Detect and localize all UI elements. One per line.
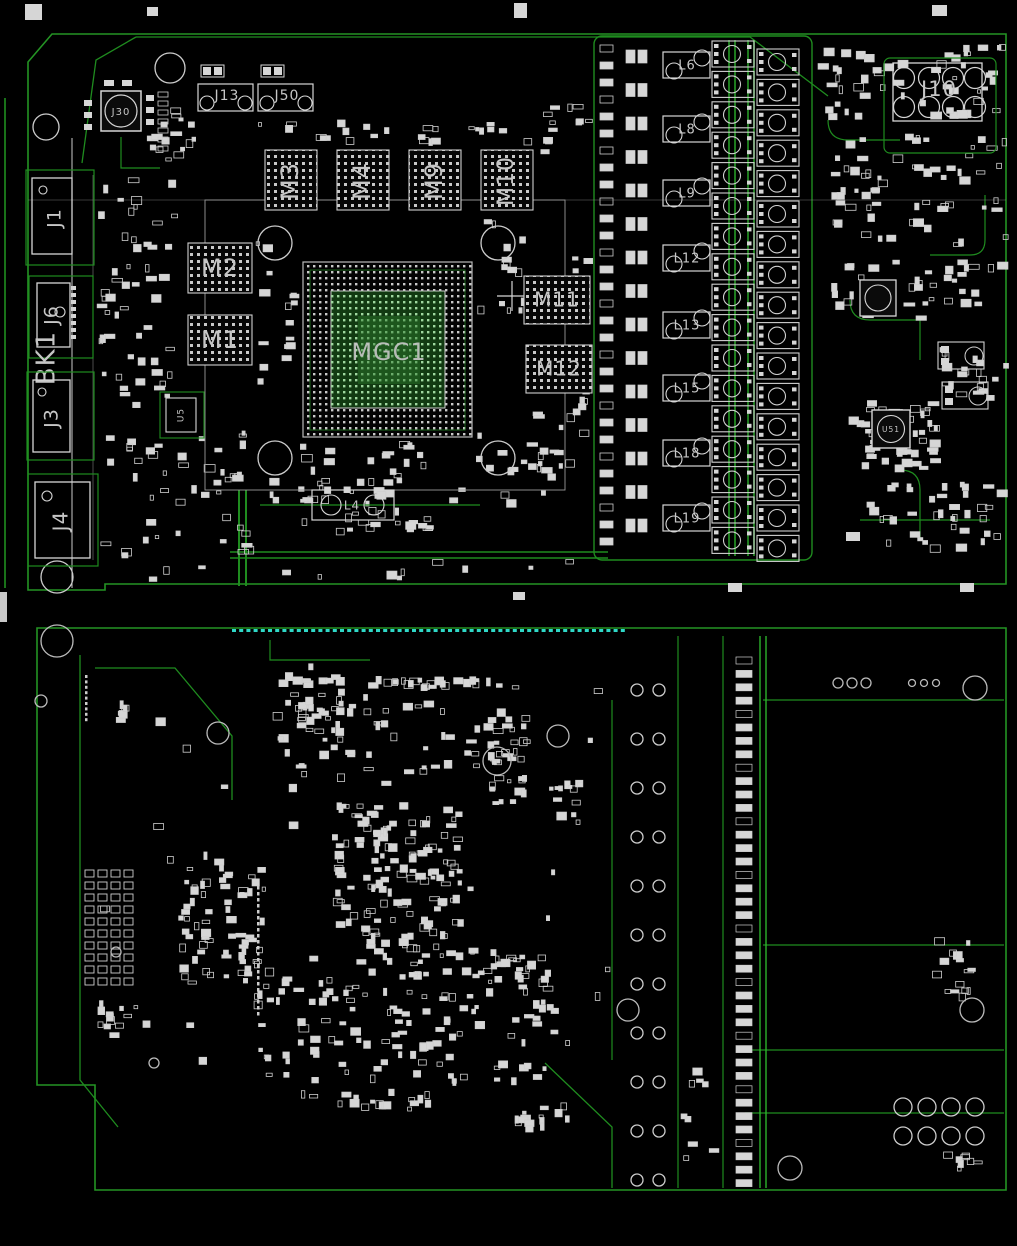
smd-pad <box>522 1040 525 1047</box>
smd-pad <box>502 724 512 728</box>
smd-pad <box>128 355 134 359</box>
smd-pad <box>285 750 289 757</box>
smd-pad <box>902 459 912 467</box>
smd-pad <box>997 490 1007 497</box>
smd-pad <box>860 93 870 99</box>
smd-pad <box>219 878 225 883</box>
smd-pad <box>565 1116 569 1122</box>
memory-m10: M10 <box>481 150 533 210</box>
smd-pad <box>961 299 971 307</box>
smd-pad <box>339 807 343 812</box>
diode-pin <box>945 398 953 405</box>
connector-pad <box>736 831 752 838</box>
smd-pad <box>931 112 942 119</box>
smd-pad <box>541 150 549 154</box>
smd-pad <box>447 951 456 956</box>
silk-dash <box>232 629 236 632</box>
mosfet-pin <box>714 113 719 117</box>
smd-pad <box>528 961 536 969</box>
smd-pad <box>338 120 346 127</box>
memory-m1: M1 <box>188 315 252 365</box>
smd-pad <box>198 950 205 954</box>
smd-pad <box>868 214 875 222</box>
smd-pad <box>497 709 505 717</box>
smd-pad <box>279 680 288 687</box>
smd-pad <box>389 1089 394 1095</box>
smd-pad <box>411 831 416 836</box>
smd-pad <box>339 701 343 706</box>
mosfet-pin <box>759 174 764 178</box>
memory-m11: M11 <box>524 276 590 324</box>
mosfet-pin <box>714 425 719 429</box>
mosfet-pin <box>792 97 797 101</box>
smd-pad <box>408 681 413 688</box>
smd-pad <box>834 220 842 227</box>
silk-dash <box>498 629 502 632</box>
mosfet-pin <box>747 454 752 458</box>
smd-pad <box>572 813 576 817</box>
smd-pad <box>981 539 984 545</box>
smd-pad <box>703 1082 709 1087</box>
smd-pad <box>515 1116 518 1123</box>
smd-pad <box>851 167 860 175</box>
mosfet-pin <box>714 500 719 504</box>
smd-pad <box>104 80 114 86</box>
silk-dot <box>85 675 88 678</box>
smd-pad <box>960 289 966 294</box>
smd-pad <box>312 1077 319 1083</box>
smd-pad <box>408 933 413 939</box>
smd-pad <box>434 907 440 911</box>
smd-pad <box>897 452 902 457</box>
silk-dash <box>282 629 286 632</box>
smd-pad <box>270 478 279 485</box>
header-pad <box>600 266 613 273</box>
smd-pad <box>513 1018 520 1023</box>
smd-pad <box>431 876 435 879</box>
smd-pad <box>374 830 381 837</box>
header-pad <box>600 79 613 86</box>
smd-pad <box>400 975 405 980</box>
smd-pad <box>488 753 494 760</box>
mosfet-pin <box>792 387 797 391</box>
memory-m12: M12 <box>526 345 592 393</box>
smd-pad <box>573 257 579 260</box>
mosfet-pin <box>792 432 797 436</box>
smd-pad <box>351 1028 361 1036</box>
smd-pad <box>400 803 408 810</box>
silk-dash <box>614 629 618 632</box>
smd-pad <box>475 726 480 733</box>
refdes-m3: M3 <box>276 162 304 200</box>
mosfet-pin <box>714 90 719 94</box>
silk-dash <box>297 629 301 632</box>
smd-pad <box>538 462 542 466</box>
smd-pad <box>161 122 167 127</box>
smd-pad <box>923 302 928 306</box>
mosfet-pin <box>714 378 719 382</box>
mosfet-pin <box>759 425 764 429</box>
smd-pad <box>283 1052 289 1058</box>
silk-dash <box>441 629 445 632</box>
cap-pad <box>626 385 635 398</box>
silk-dot <box>257 892 260 896</box>
smd-pad <box>182 929 189 934</box>
smd-pad <box>549 128 558 131</box>
smd-pad <box>390 469 396 475</box>
smd-pad <box>515 972 521 979</box>
smd-pad <box>309 664 313 670</box>
smd-pad <box>395 1020 402 1024</box>
smd-pad <box>551 1008 558 1013</box>
refdes-l6: L6 <box>678 59 696 74</box>
smd-pad <box>956 544 967 551</box>
diode-pin <box>941 358 949 365</box>
connector-pad <box>736 751 752 758</box>
silk-dash <box>527 629 531 632</box>
smd-pad <box>559 464 562 469</box>
smd-pad <box>873 68 881 74</box>
mosfet-pin <box>714 105 719 109</box>
smd-pad <box>937 494 947 498</box>
silk-dot <box>85 707 88 710</box>
smd-pad <box>442 732 445 739</box>
mosfet-pin <box>714 226 719 230</box>
silk-dot <box>257 904 260 908</box>
smd-pad <box>990 77 996 84</box>
silk-dash <box>542 629 546 632</box>
smd-pad <box>862 192 870 199</box>
smd-pad <box>913 219 923 227</box>
mosfet-pin <box>747 363 752 367</box>
smd-pad <box>265 1055 271 1061</box>
smd-pad <box>336 721 340 727</box>
smd-pad <box>920 100 925 106</box>
mosfet-pin <box>747 485 752 489</box>
smd-pad <box>521 724 526 729</box>
silk-dot <box>85 697 88 700</box>
connector-pad <box>736 737 752 744</box>
smd-pad <box>357 1038 361 1043</box>
smd-pad <box>930 440 940 447</box>
refdes-j6: J6 <box>41 305 63 326</box>
smd-pad <box>336 922 345 928</box>
smd-pad <box>832 291 837 298</box>
cap-pad <box>638 151 647 164</box>
smd-pad <box>842 50 851 57</box>
smd-pad <box>454 845 460 850</box>
smd-pad <box>580 397 585 403</box>
smd-pad <box>215 859 224 865</box>
mosfet-pin <box>714 143 719 147</box>
smd-pad <box>890 517 897 524</box>
mosfet-pin <box>714 356 719 360</box>
cap-pad <box>626 419 635 432</box>
silk-dash <box>369 629 373 632</box>
smd-pad <box>576 780 583 787</box>
smd-pad <box>540 1106 548 1110</box>
smd-pad <box>338 689 344 695</box>
smd-pad <box>919 430 924 434</box>
smd-pad <box>382 453 390 458</box>
smd-pad <box>448 1074 453 1079</box>
mosfet-pin <box>747 515 752 519</box>
smd-pad <box>134 245 142 252</box>
smd-pad <box>143 1021 150 1028</box>
memory-m2: M2 <box>188 243 252 293</box>
mosfet-pin <box>747 471 752 475</box>
smd-pad <box>184 904 190 909</box>
connector-pad <box>736 992 752 999</box>
smd-pad <box>102 372 106 376</box>
smd-pad <box>240 960 246 964</box>
smd-pad <box>192 486 197 494</box>
connector-pad <box>736 845 752 852</box>
mosfet-pin <box>747 531 752 535</box>
mosfet-pin <box>714 52 719 56</box>
smd-pad <box>259 342 269 345</box>
silk-dash <box>570 629 574 632</box>
diode-pin <box>941 346 949 353</box>
mosfet-pin <box>714 470 719 474</box>
smd-pad <box>533 1022 542 1026</box>
mosfet-pin <box>792 357 797 361</box>
smd-pad <box>387 571 397 579</box>
smd-pad <box>326 678 334 683</box>
smd-pad <box>332 835 337 840</box>
connector-pad <box>736 1059 752 1066</box>
connector-pad <box>736 1113 752 1120</box>
refdes-m1: M1 <box>201 326 239 354</box>
mosfet-pin <box>747 106 752 110</box>
smd-pad <box>826 107 834 113</box>
test-pad <box>960 583 974 592</box>
smd-pad <box>276 998 279 1005</box>
smd-pad <box>409 856 416 862</box>
smd-pad <box>457 870 462 874</box>
smd-pad <box>465 751 471 756</box>
refdes-u5: U5 <box>177 408 187 422</box>
mosfet-pin <box>792 144 797 148</box>
smd-pad <box>322 711 328 715</box>
mosfet-pin <box>747 379 752 383</box>
mosfet-pin <box>759 273 764 277</box>
mosfet-pin <box>759 524 764 528</box>
refdes-l15: L15 <box>674 382 701 397</box>
cap-pad <box>638 285 647 298</box>
mosfet-pin <box>747 545 752 549</box>
mosfet-pin <box>714 516 719 520</box>
smd-pad <box>524 1015 534 1019</box>
smd-pad <box>454 678 463 684</box>
refdes-j3: J3 <box>41 408 63 429</box>
smd-pad <box>550 106 559 110</box>
smd-pad <box>263 67 271 75</box>
header-pad <box>600 164 613 171</box>
smd-pad <box>297 723 306 728</box>
smd-pad <box>309 704 314 711</box>
smd-pad <box>867 502 874 507</box>
silk-dash <box>484 629 488 632</box>
smd-pad <box>229 934 236 939</box>
smd-pad <box>350 1099 359 1107</box>
mosfet-pin <box>759 82 764 86</box>
mosfet-pin <box>714 546 719 550</box>
mosfet-pin <box>792 114 797 118</box>
smd-pad <box>149 577 157 582</box>
smd-pad <box>367 811 377 815</box>
smd-pad <box>399 1052 402 1058</box>
refdes-u51: U51 <box>882 425 900 434</box>
cap-pad <box>638 117 647 130</box>
refdes-m11: M11 <box>534 288 580 312</box>
mosfet-pin <box>747 241 752 245</box>
smd-pad <box>818 64 828 70</box>
mosfet-pin <box>759 182 764 186</box>
smd-pad <box>283 570 291 575</box>
smd-pad <box>882 458 889 464</box>
smd-pad <box>425 1100 430 1107</box>
mosfet-pin <box>759 60 764 64</box>
smd-pad <box>553 798 561 802</box>
cap-pad <box>626 184 635 197</box>
smd-pad <box>390 1006 397 1009</box>
silk-dash <box>290 629 294 632</box>
smd-pad <box>456 812 462 817</box>
smd-pad <box>472 1009 476 1014</box>
mosfet-pin <box>714 478 719 482</box>
smd-pad <box>428 870 431 876</box>
smd-pad <box>404 445 414 449</box>
smd-pad <box>388 889 391 897</box>
smd-pad <box>187 1023 194 1028</box>
smd-pad <box>849 417 859 425</box>
smd-pad <box>192 137 196 141</box>
cap-pad <box>638 218 647 231</box>
smd-pad <box>120 1006 124 1010</box>
connector-pad <box>736 898 752 905</box>
connector-pad <box>736 912 752 919</box>
smd-pad <box>146 119 154 125</box>
silk-dash <box>513 629 517 632</box>
silk-dash <box>621 629 625 632</box>
mosfet-pin <box>792 553 797 557</box>
smd-pad <box>346 750 355 754</box>
refdes-m2: M2 <box>201 254 239 282</box>
mosfet-pin <box>792 493 797 497</box>
ic-u51: U51 <box>872 410 910 448</box>
smd-pad <box>311 1047 319 1054</box>
smd-pad <box>960 177 971 184</box>
mosfet-pin <box>759 311 764 315</box>
cap-pad <box>638 318 647 331</box>
smd-pad <box>404 770 413 774</box>
cap-pad <box>626 352 635 365</box>
smd-pad <box>893 260 900 264</box>
silk-dash <box>419 629 423 632</box>
smd-pad <box>584 258 593 263</box>
fiducial-marker <box>25 4 42 20</box>
test-pad <box>846 532 860 541</box>
smd-pad <box>444 807 453 813</box>
smd-pad <box>106 294 116 301</box>
smd-pad <box>908 512 917 515</box>
smd-pad <box>938 206 948 211</box>
smd-pad <box>433 1041 441 1047</box>
silk-dash <box>340 629 344 632</box>
cap-pad <box>638 50 647 63</box>
mosfet-pin <box>714 303 719 307</box>
smd-pad <box>171 132 182 136</box>
silk-dot <box>85 680 88 683</box>
smd-pad <box>504 244 511 251</box>
mosfet-pin <box>714 174 719 178</box>
smd-pad <box>519 777 524 781</box>
smd-pad <box>446 824 456 828</box>
smd-pad <box>519 308 522 313</box>
smd-pad <box>923 541 928 545</box>
refdes-l9: L9 <box>678 187 696 202</box>
mosfet-pin <box>747 227 752 231</box>
smd-pad <box>369 683 379 689</box>
smd-pad <box>282 356 291 361</box>
smd-pad <box>855 113 862 119</box>
connector-pad <box>736 1019 752 1026</box>
smd-pad <box>159 274 169 280</box>
smd-pad <box>576 119 583 124</box>
smd-pad <box>286 1059 290 1064</box>
mosfet-pin <box>792 158 797 162</box>
smd-pad <box>384 830 387 836</box>
mosfet-pin <box>714 538 719 542</box>
smd-pad <box>915 277 919 285</box>
smd-pad <box>143 537 148 543</box>
smd-pad <box>240 441 246 449</box>
smd-pad <box>550 787 554 790</box>
smd-pad <box>376 722 380 730</box>
mosfet-pin <box>759 220 764 224</box>
smd-pad <box>327 989 333 995</box>
smd-pad <box>953 952 962 960</box>
fiducial-marker <box>513 592 525 600</box>
header-pad <box>600 368 613 375</box>
smd-pad <box>946 266 954 274</box>
smd-pad <box>440 681 445 688</box>
mosfet-pin <box>747 59 752 63</box>
connector-pad <box>736 1180 752 1187</box>
smd-pad <box>449 871 454 876</box>
silk-dash <box>506 629 510 632</box>
refdes-l13: L13 <box>674 319 701 334</box>
smd-pad <box>410 869 416 872</box>
smd-pad <box>201 929 210 937</box>
smd-pad <box>427 1042 434 1050</box>
smd-pad <box>904 450 911 455</box>
smd-pad <box>286 320 294 325</box>
smd-pad <box>554 450 563 455</box>
connector-pad <box>736 1153 752 1160</box>
mosfet-pin <box>714 447 719 451</box>
smd-pad <box>335 1041 343 1045</box>
smd-pad <box>278 737 284 741</box>
smd-pad <box>424 747 428 750</box>
silk-dot <box>257 976 260 980</box>
smd-pad <box>486 989 492 997</box>
smd-pad <box>406 522 416 530</box>
smd-pad <box>443 969 451 975</box>
smd-pad <box>424 922 431 929</box>
smd-pad <box>188 122 194 127</box>
